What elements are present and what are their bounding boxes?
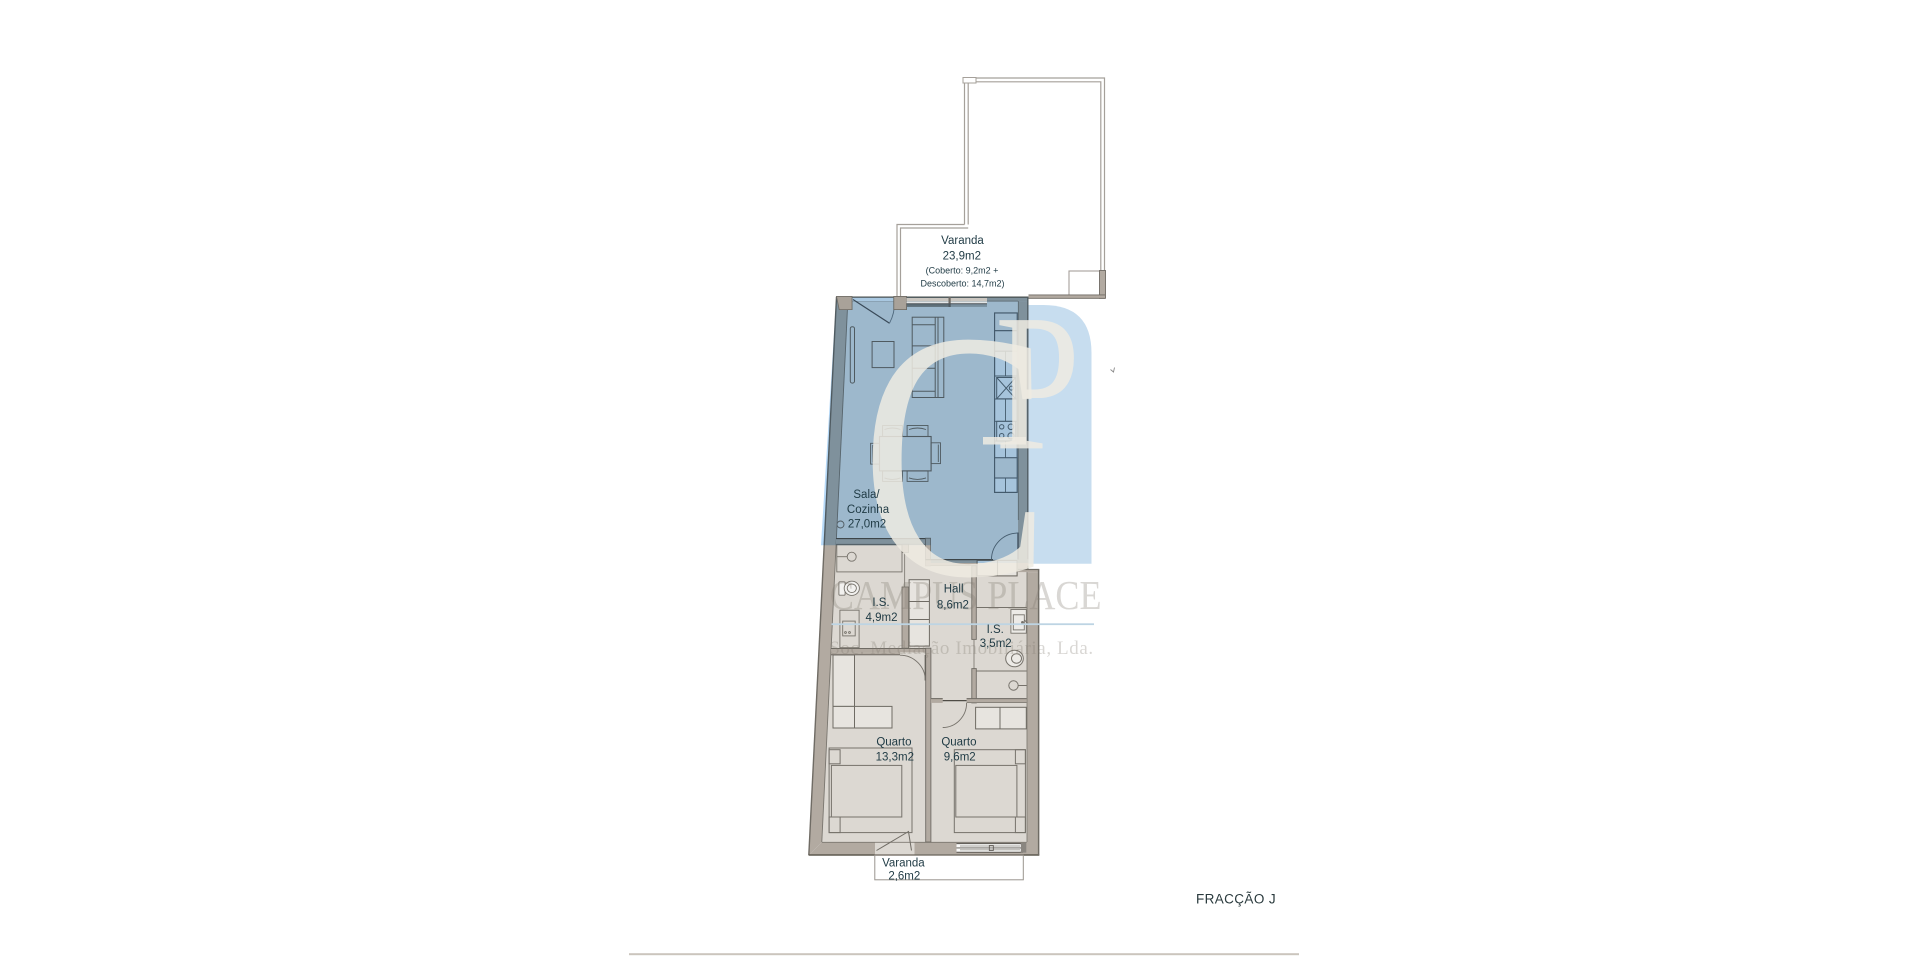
svg-text:2,6m2: 2,6m2 — [888, 871, 920, 883]
svg-text:FRACÇÃO J: FRACÇÃO J — [1196, 892, 1276, 907]
svg-text:23,9m2: 23,9m2 — [943, 251, 981, 263]
svg-text:(Coberto: 9,2m2 +: (Coberto: 9,2m2 + — [926, 266, 999, 276]
svg-text:8,6m2: 8,6m2 — [937, 600, 969, 612]
svg-text:Soc. Mediação Imobiliária, Lda: Soc. Mediação Imobiliária, Lda. — [829, 638, 1093, 659]
svg-text:Varanda: Varanda — [941, 235, 984, 247]
svg-text:Varanda: Varanda — [882, 858, 925, 870]
svg-text:I.S.: I.S. — [872, 597, 889, 609]
svg-text:Cozinha: Cozinha — [847, 504, 890, 516]
svg-text:27,0m2: 27,0m2 — [848, 519, 886, 531]
svg-text:9,6m2: 9,6m2 — [944, 751, 976, 763]
svg-text:I.S.: I.S. — [987, 624, 1004, 636]
svg-text:3,5m2: 3,5m2 — [980, 638, 1012, 650]
svg-text:Sala/: Sala/ — [853, 489, 880, 501]
svg-text:Hall: Hall — [944, 584, 964, 596]
svg-text:P: P — [995, 274, 1080, 491]
svg-text:13,3m2: 13,3m2 — [876, 751, 914, 763]
svg-text:Quarto: Quarto — [876, 737, 911, 749]
svg-text:Descoberto: 14,7m2): Descoberto: 14,7m2) — [920, 279, 1004, 289]
svg-text:Quarto: Quarto — [941, 737, 976, 749]
svg-text:4,9m2: 4,9m2 — [866, 612, 898, 624]
